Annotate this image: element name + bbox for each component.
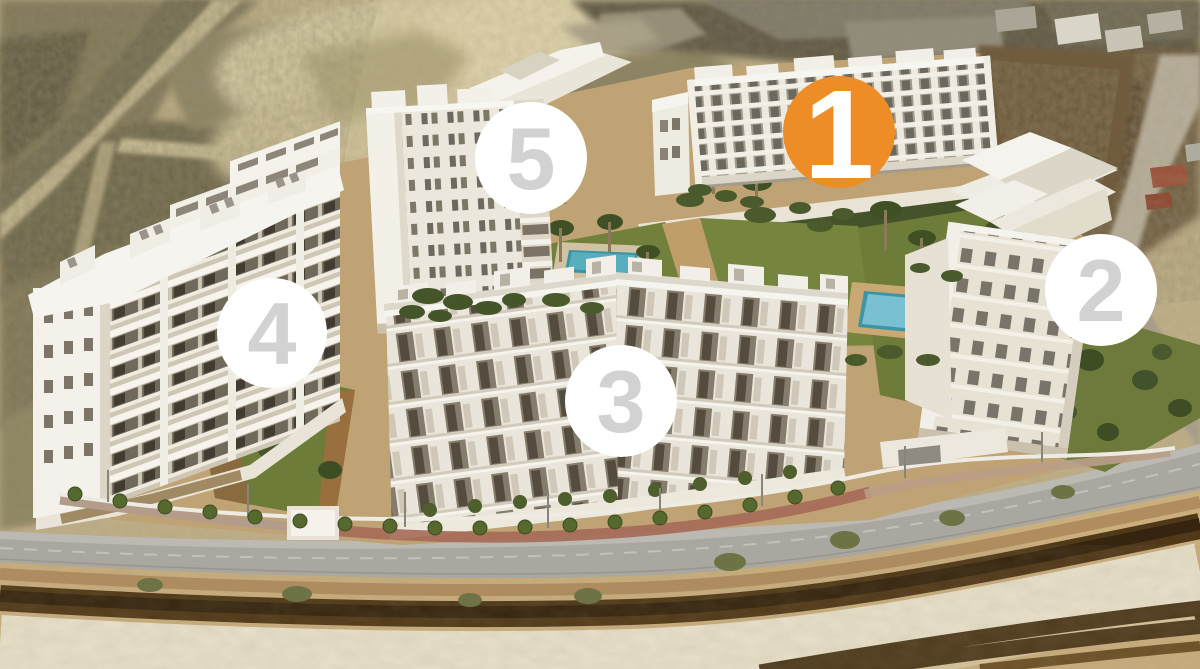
svg-text:4: 4 (248, 284, 297, 383)
svg-text:2: 2 (1077, 241, 1126, 340)
svg-text:5: 5 (507, 109, 556, 208)
svg-text:3: 3 (597, 352, 646, 451)
svg-text:1: 1 (804, 64, 874, 205)
